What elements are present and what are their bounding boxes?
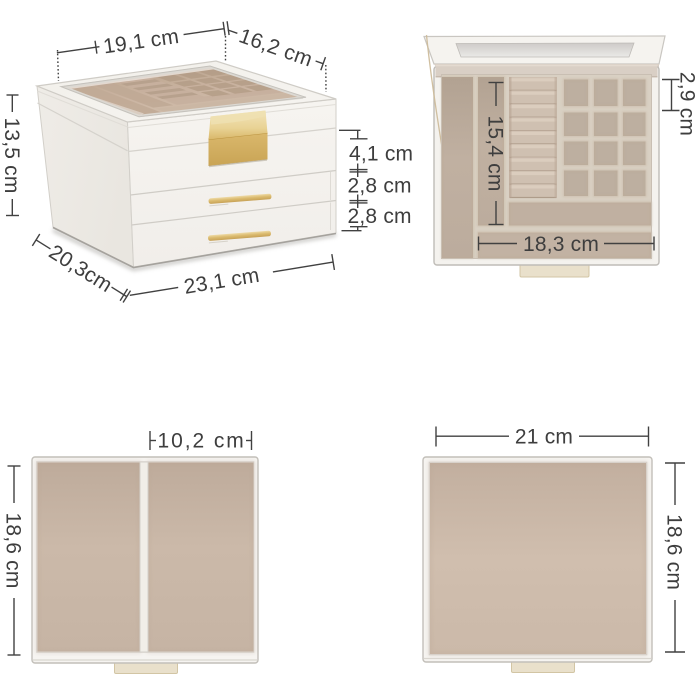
svg-text:18,3 cm: 18,3 cm	[523, 233, 599, 256]
svg-text:23,1 cm: 23,1 cm	[182, 264, 261, 299]
svg-text:10,2 cm: 10,2 cm	[158, 430, 245, 453]
svg-text:18,6 cm: 18,6 cm	[663, 514, 686, 590]
svg-text:16,2 cm: 16,2 cm	[236, 24, 315, 71]
svg-text:15,4 cm: 15,4 cm	[484, 115, 507, 191]
svg-text:19,1 cm: 19,1 cm	[102, 25, 181, 59]
svg-text:21 cm: 21 cm	[515, 426, 573, 449]
svg-text:2,8 cm: 2,8 cm	[348, 174, 412, 197]
svg-text:4,1 cm: 4,1 cm	[349, 143, 413, 166]
svg-text:2,9 cm: 2,9 cm	[676, 72, 699, 136]
svg-text:18,6 cm: 18,6 cm	[2, 512, 25, 588]
svg-text:2,8 cm: 2,8 cm	[348, 205, 412, 228]
svg-text:13,5 cm: 13,5 cm	[0, 117, 23, 193]
